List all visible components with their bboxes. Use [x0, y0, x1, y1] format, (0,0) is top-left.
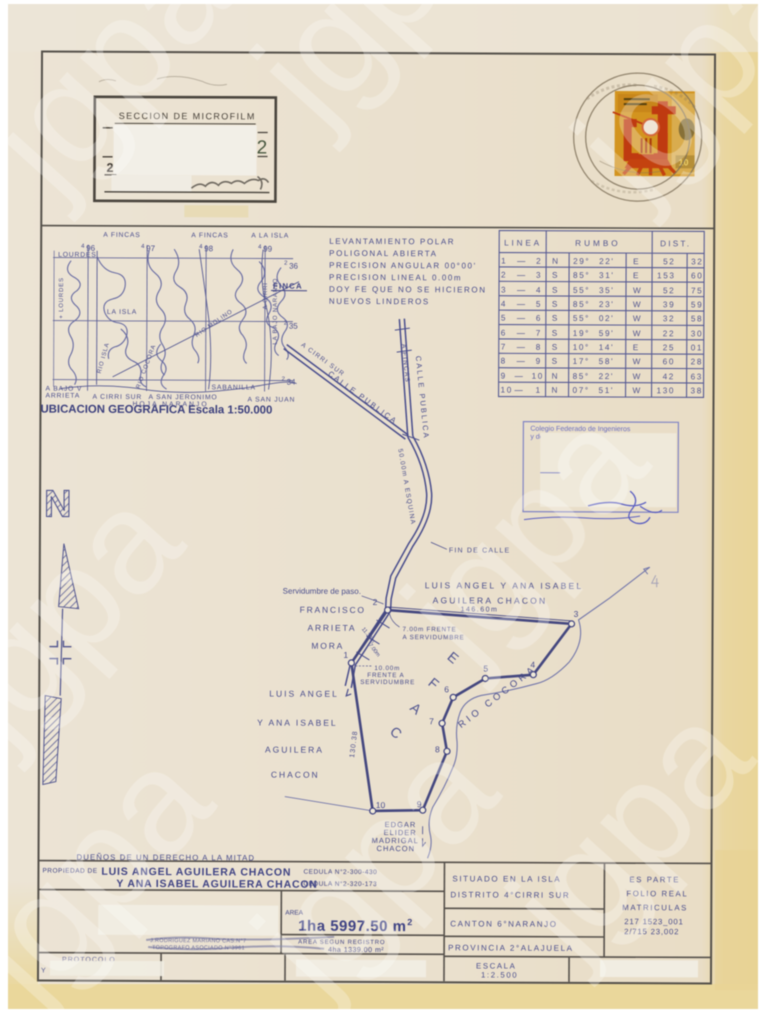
svg-text:17°: 17°: [573, 357, 590, 366]
svg-text:E: E: [633, 343, 640, 352]
svg-text:22': 22': [599, 372, 615, 381]
svg-text:23': 23': [599, 300, 615, 309]
svg-text:TOPOGRAFO ASOCIADO N°3961: TOPOGRAFO ASOCIADO N°3961: [152, 945, 245, 951]
svg-text:ESCALA: ESCALA: [476, 961, 516, 970]
svg-text:52: 52: [663, 257, 675, 266]
svg-text:A FINCAS: A FINCAS: [103, 232, 140, 239]
svg-text:9: 9: [536, 357, 542, 366]
svg-text:55°: 55°: [573, 286, 590, 295]
svg-text:38: 38: [691, 386, 703, 395]
svg-text:W: W: [633, 372, 642, 381]
svg-text:2: 2: [501, 271, 507, 280]
svg-text:9: 9: [501, 372, 507, 381]
svg-text:CHACON: CHACON: [271, 770, 320, 780]
svg-text:85°: 85°: [573, 372, 590, 381]
svg-text:FRANCISCO: FRANCISCO: [300, 605, 366, 615]
svg-text:22: 22: [663, 329, 675, 338]
svg-text:—: —: [517, 357, 527, 366]
svg-text:—: —: [517, 257, 527, 266]
svg-text:8: 8: [501, 357, 507, 366]
svg-text:32: 32: [663, 314, 675, 323]
svg-text:22': 22': [599, 257, 615, 266]
svg-text:N: N: [552, 257, 560, 266]
svg-text:3: 3: [574, 609, 579, 619]
svg-text:51': 51': [599, 386, 615, 395]
svg-text:A FINCAS: A FINCAS: [191, 232, 228, 239]
svg-text:7: 7: [501, 343, 507, 352]
svg-text:25: 25: [663, 343, 675, 352]
svg-text:AGUILERA: AGUILERA: [265, 745, 324, 755]
svg-text:52: 52: [663, 286, 675, 295]
svg-text:3: 3: [501, 286, 507, 295]
svg-text:PRECISION ANGULAR 00°00': PRECISION ANGULAR 00°00': [329, 261, 477, 271]
svg-text:30: 30: [691, 329, 703, 338]
svg-text:8: 8: [536, 343, 542, 352]
svg-text:35: 35: [289, 322, 298, 331]
svg-text:6: 6: [444, 684, 449, 694]
svg-text:—: —: [517, 343, 527, 352]
svg-text:60: 60: [663, 357, 675, 366]
svg-text:J.RODRIGUEZ MARIANO CAS.N°7: J.RODRIGUEZ MARIANO CAS.N°7: [150, 938, 246, 944]
svg-text:58': 58': [599, 357, 615, 366]
svg-text:S: S: [552, 314, 559, 323]
svg-text:39: 39: [663, 300, 675, 309]
svg-text:55°: 55°: [573, 314, 590, 323]
svg-text:4: 4: [501, 300, 507, 309]
svg-text:—: —: [517, 300, 527, 309]
svg-text:02': 02': [599, 314, 615, 323]
svg-text:FINCA: FINCA: [273, 282, 303, 291]
svg-text:Y ANA ISABEL: Y ANA ISABEL: [257, 717, 338, 727]
svg-text:59: 59: [691, 300, 703, 309]
svg-text:2: 2: [536, 257, 542, 266]
svg-text:10: 10: [501, 386, 513, 395]
svg-text:RUMBO: RUMBO: [575, 239, 621, 248]
svg-text:7: 7: [536, 329, 542, 338]
svg-text:3: 3: [536, 271, 542, 280]
svg-text:34: 34: [287, 378, 296, 387]
svg-text:ARRIETA: ARRIETA: [307, 623, 356, 633]
svg-text:—: —: [515, 372, 525, 381]
svg-text:—: —: [515, 386, 525, 395]
svg-text:2: 2: [257, 137, 268, 158]
svg-text:W: W: [633, 314, 642, 323]
svg-text:SABANILLA: SABANILLA: [212, 384, 256, 391]
svg-text:85°: 85°: [573, 271, 590, 280]
svg-text:LA ISLA: LA ISLA: [107, 309, 137, 316]
svg-text:—: —: [517, 286, 527, 295]
svg-text:S: S: [552, 343, 559, 352]
svg-text:7: 7: [429, 716, 434, 726]
svg-text:1: 1: [343, 650, 348, 660]
svg-text:SERVIDUMBRE: SERVIDUMBRE: [360, 679, 415, 686]
svg-text:S: S: [552, 300, 559, 309]
svg-text:1: 1: [536, 386, 542, 395]
svg-text:5: 5: [501, 314, 507, 323]
svg-text:E: E: [633, 271, 640, 280]
svg-text:07°: 07°: [573, 386, 590, 395]
svg-text:DIST.: DIST.: [660, 239, 691, 248]
svg-text:S: S: [552, 357, 559, 366]
svg-text:60: 60: [691, 271, 703, 280]
svg-text:14': 14': [599, 343, 615, 352]
svg-text:A LA ISLA: A LA ISLA: [251, 232, 289, 239]
svg-text:6: 6: [536, 314, 542, 323]
svg-text:58: 58: [691, 314, 703, 323]
svg-text:32: 32: [691, 257, 703, 266]
svg-text:W: W: [633, 329, 642, 338]
svg-text:97: 97: [146, 244, 155, 253]
svg-text:10°: 10°: [573, 343, 590, 352]
svg-text:S: S: [552, 329, 559, 338]
svg-text:5: 5: [536, 300, 542, 309]
svg-text:LEVANTAMIENTO POLAR: LEVANTAMIENTO POLAR: [329, 237, 455, 247]
svg-text:A CIRRI SUR: A CIRRI SUR: [93, 394, 143, 401]
svg-text:PRECISION LINEAL 0.00m: PRECISION LINEAL 0.00m: [329, 273, 462, 283]
svg-text:LUIS ANGEL: LUIS ANGEL: [269, 689, 339, 699]
svg-text:31': 31': [599, 271, 615, 280]
svg-text:LOURDES: LOURDES: [58, 252, 96, 259]
svg-text:75: 75: [691, 286, 703, 295]
svg-text:DOY FE QUE NO SE HICIERON: DOY FE QUE NO SE HICIERON: [329, 285, 487, 295]
svg-text:+ LOURDES: + LOURDES: [59, 277, 65, 318]
svg-text:98: 98: [204, 244, 213, 253]
svg-text:MORA: MORA: [311, 641, 344, 651]
svg-text:29°: 29°: [573, 257, 590, 266]
svg-text:A CIRRI: A CIRRI: [263, 282, 269, 309]
svg-text:99: 99: [263, 245, 272, 254]
svg-text:S: S: [552, 286, 559, 295]
svg-text:—: —: [517, 271, 527, 280]
svg-text:85°: 85°: [573, 300, 590, 309]
svg-text:2: 2: [373, 597, 378, 607]
svg-text:28: 28: [691, 357, 703, 366]
svg-text:1: 1: [501, 257, 507, 266]
svg-text:153: 153: [657, 271, 676, 280]
svg-text:130: 130: [657, 386, 676, 395]
svg-text:6: 6: [501, 329, 507, 338]
svg-text:4: 4: [530, 660, 535, 670]
svg-text:—: —: [517, 314, 527, 323]
svg-text:UBICACION GEOGRAFICA Escala 1:: UBICACION GEOGRAFICA Escala 1:50.000: [40, 404, 272, 417]
svg-text:59': 59': [599, 329, 615, 338]
svg-text:63: 63: [691, 372, 703, 381]
svg-text:35': 35': [599, 286, 615, 295]
svg-text:S: S: [552, 271, 559, 280]
svg-text:Servidumbre de paso.: Servidumbre de paso.: [283, 587, 361, 596]
svg-text:NUEVOS LINDEROS: NUEVOS LINDEROS: [329, 297, 430, 306]
svg-text:E: E: [633, 257, 640, 266]
svg-text:01: 01: [691, 343, 703, 352]
svg-text:10: 10: [532, 372, 544, 381]
svg-text:W: W: [633, 286, 642, 295]
svg-text:ARRIETA: ARRIETA: [46, 393, 81, 400]
svg-text:POLIGONAL ABIERTA: POLIGONAL ABIERTA: [329, 249, 437, 258]
svg-text:19°: 19°: [573, 329, 590, 338]
svg-text:36: 36: [289, 262, 298, 271]
svg-text:—: —: [517, 329, 527, 338]
svg-text:LINEA: LINEA: [504, 239, 542, 248]
svg-text:W: W: [633, 300, 642, 309]
svg-text:42: 42: [663, 372, 675, 381]
svg-text:4: 4: [536, 286, 542, 295]
svg-text:W: W: [633, 357, 642, 366]
svg-text:A SAN JUAN: A SAN JUAN: [247, 396, 295, 403]
svg-text:W: W: [633, 386, 642, 395]
svg-text:1:2.500: 1:2.500: [481, 970, 518, 979]
